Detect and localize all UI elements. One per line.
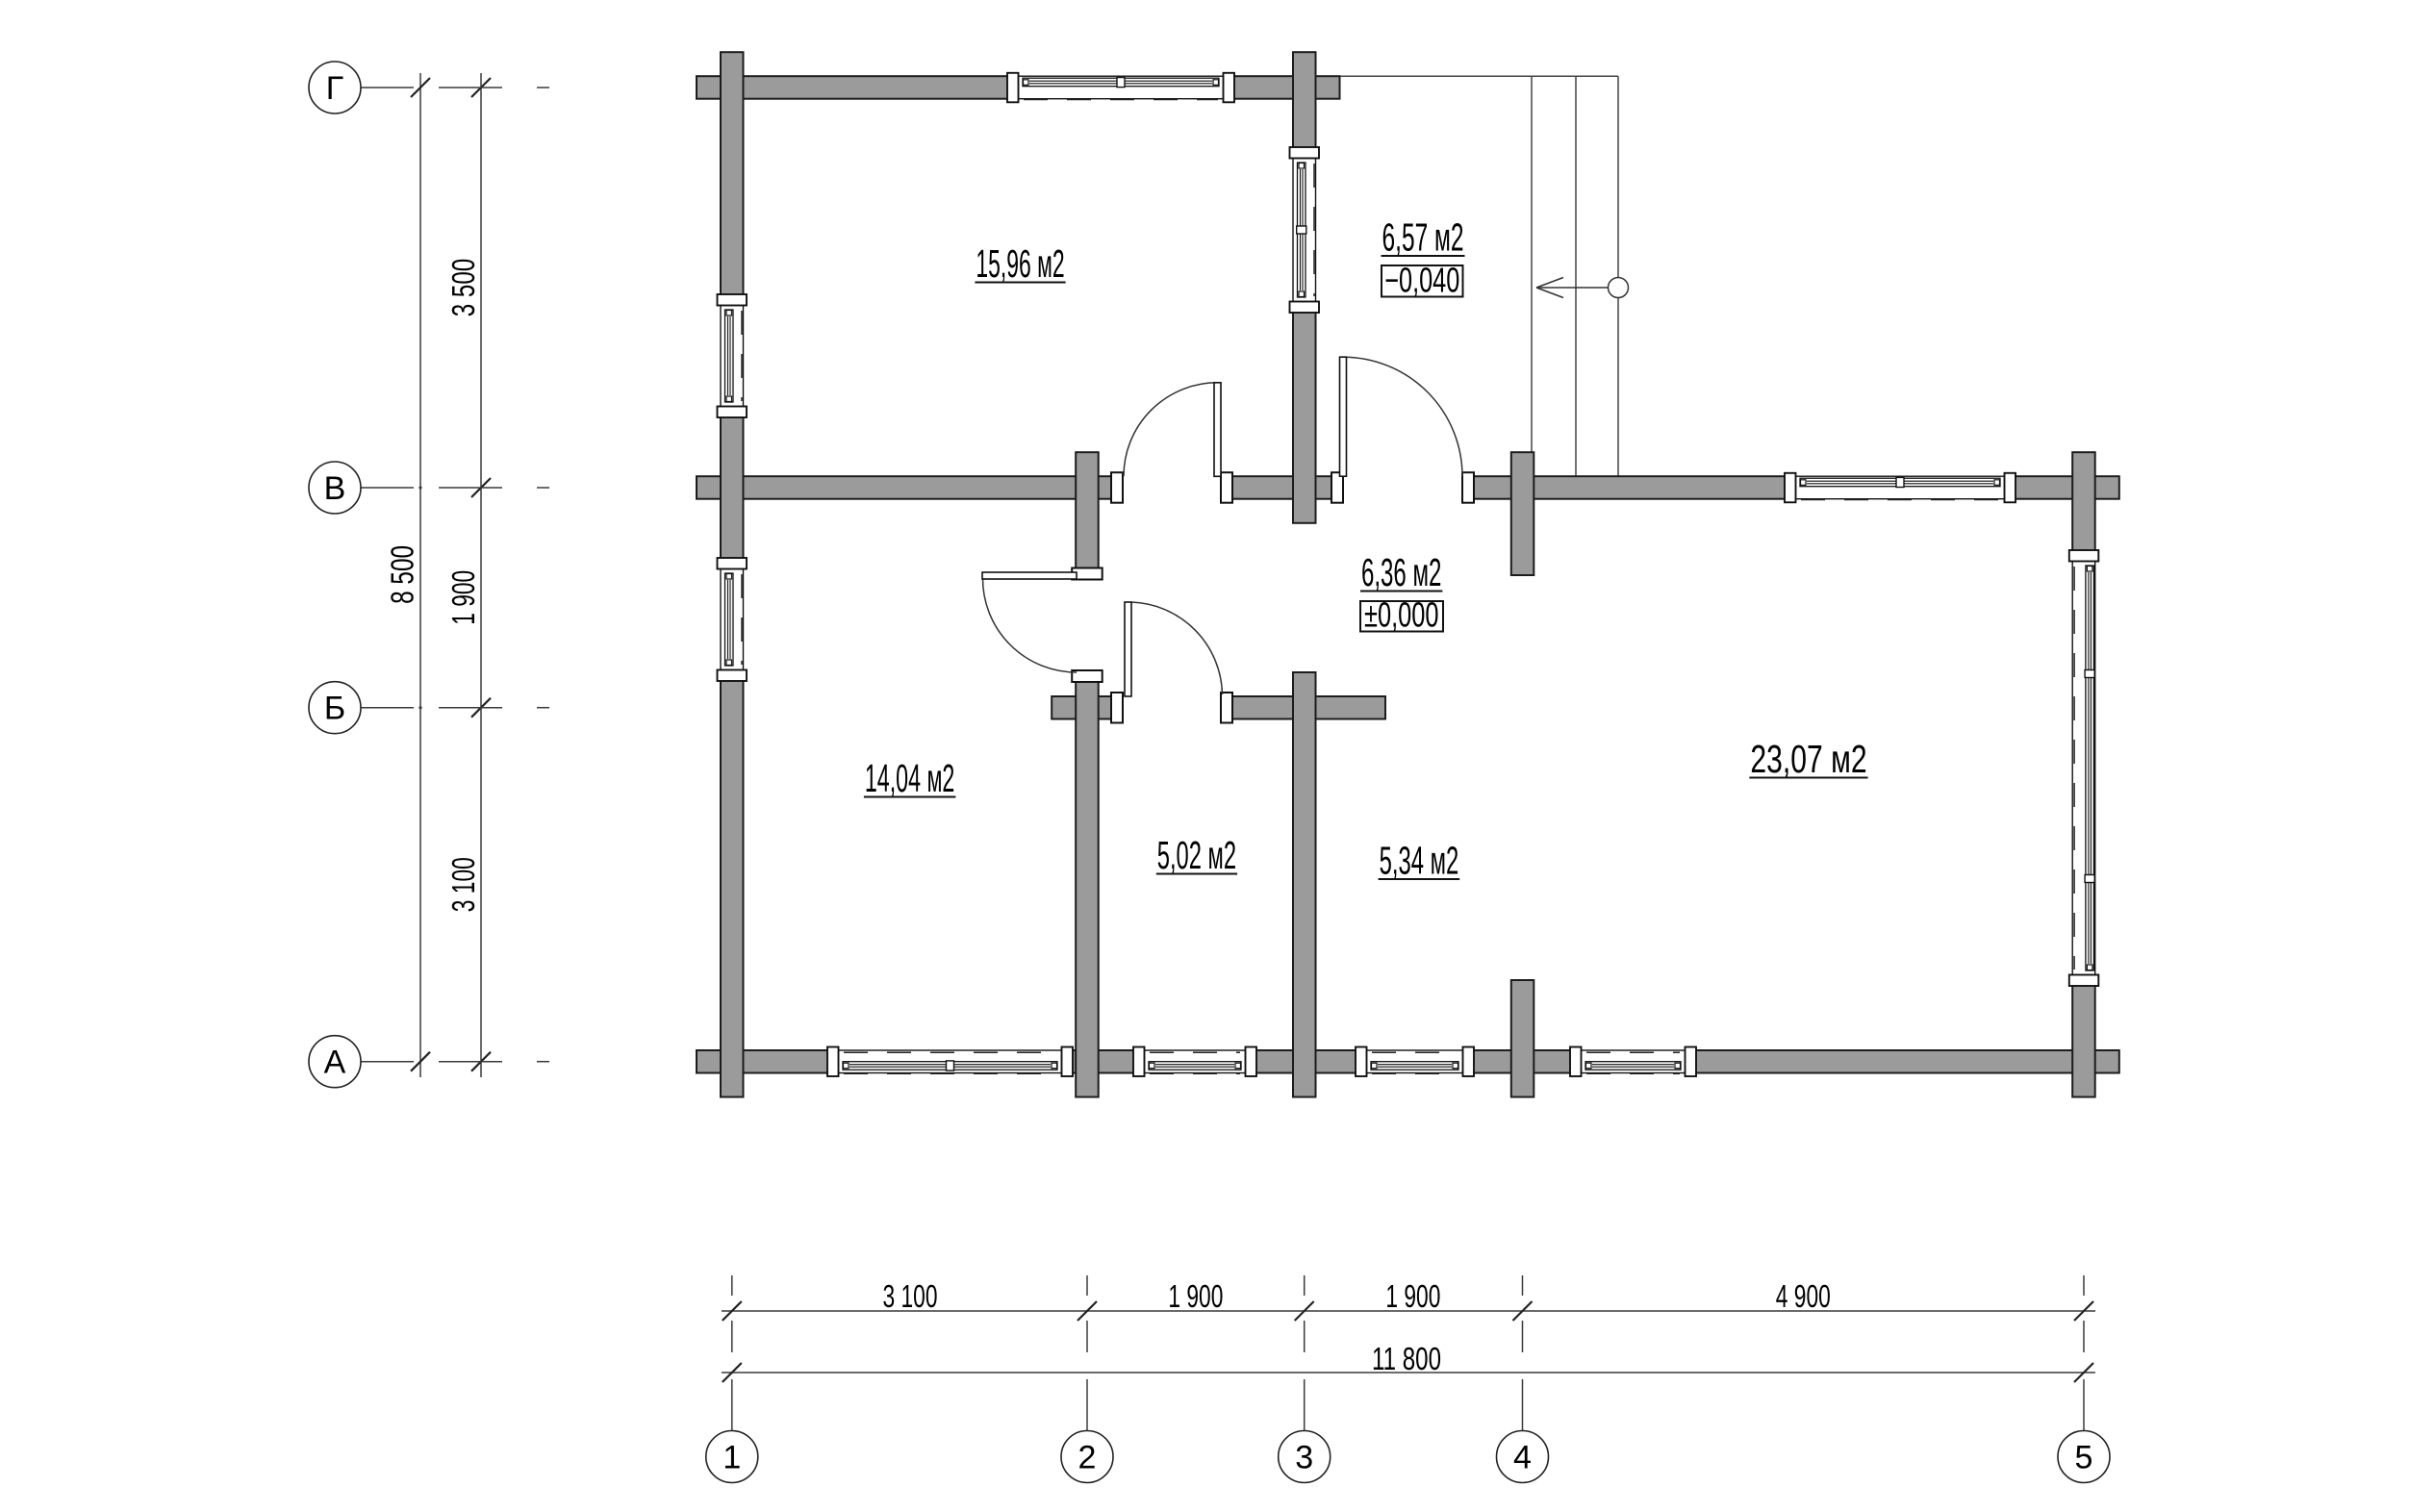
svg-text:−0,040: −0,040 <box>1384 261 1459 300</box>
svg-text:4: 4 <box>1513 1440 1532 1476</box>
svg-text:Б: Б <box>324 691 345 727</box>
svg-text:3 100: 3 100 <box>883 1278 938 1314</box>
svg-text:14,04 м2: 14,04 м2 <box>865 756 955 800</box>
svg-text:23,07 м2: 23,07 м2 <box>1750 737 1866 781</box>
svg-text:3 100: 3 100 <box>445 857 481 912</box>
svg-text:5,02 м2: 5,02 м2 <box>1157 833 1236 877</box>
svg-text:6,36 м2: 6,36 м2 <box>1361 550 1441 594</box>
svg-text:А: А <box>324 1045 346 1081</box>
svg-text:1: 1 <box>723 1440 741 1476</box>
svg-text:1 900: 1 900 <box>1168 1278 1223 1314</box>
svg-text:5,34 м2: 5,34 м2 <box>1380 839 1459 883</box>
svg-text:4 900: 4 900 <box>1776 1278 1831 1314</box>
svg-text:11 800: 11 800 <box>1372 1341 1441 1376</box>
svg-text:6,57 м2: 6,57 м2 <box>1382 215 1464 260</box>
svg-text:2: 2 <box>1078 1440 1097 1476</box>
svg-text:15,96 м2: 15,96 м2 <box>976 241 1064 286</box>
svg-text:±0,000: ±0,000 <box>1364 595 1439 635</box>
svg-text:3 500: 3 500 <box>445 259 481 317</box>
svg-text:1 900: 1 900 <box>1385 1278 1440 1314</box>
svg-text:Г: Г <box>326 70 343 107</box>
svg-text:1 900: 1 900 <box>445 570 481 625</box>
svg-text:5: 5 <box>2075 1440 2093 1476</box>
svg-text:3: 3 <box>1295 1440 1313 1476</box>
svg-text:В: В <box>324 470 346 507</box>
svg-text:8 500: 8 500 <box>385 545 420 604</box>
